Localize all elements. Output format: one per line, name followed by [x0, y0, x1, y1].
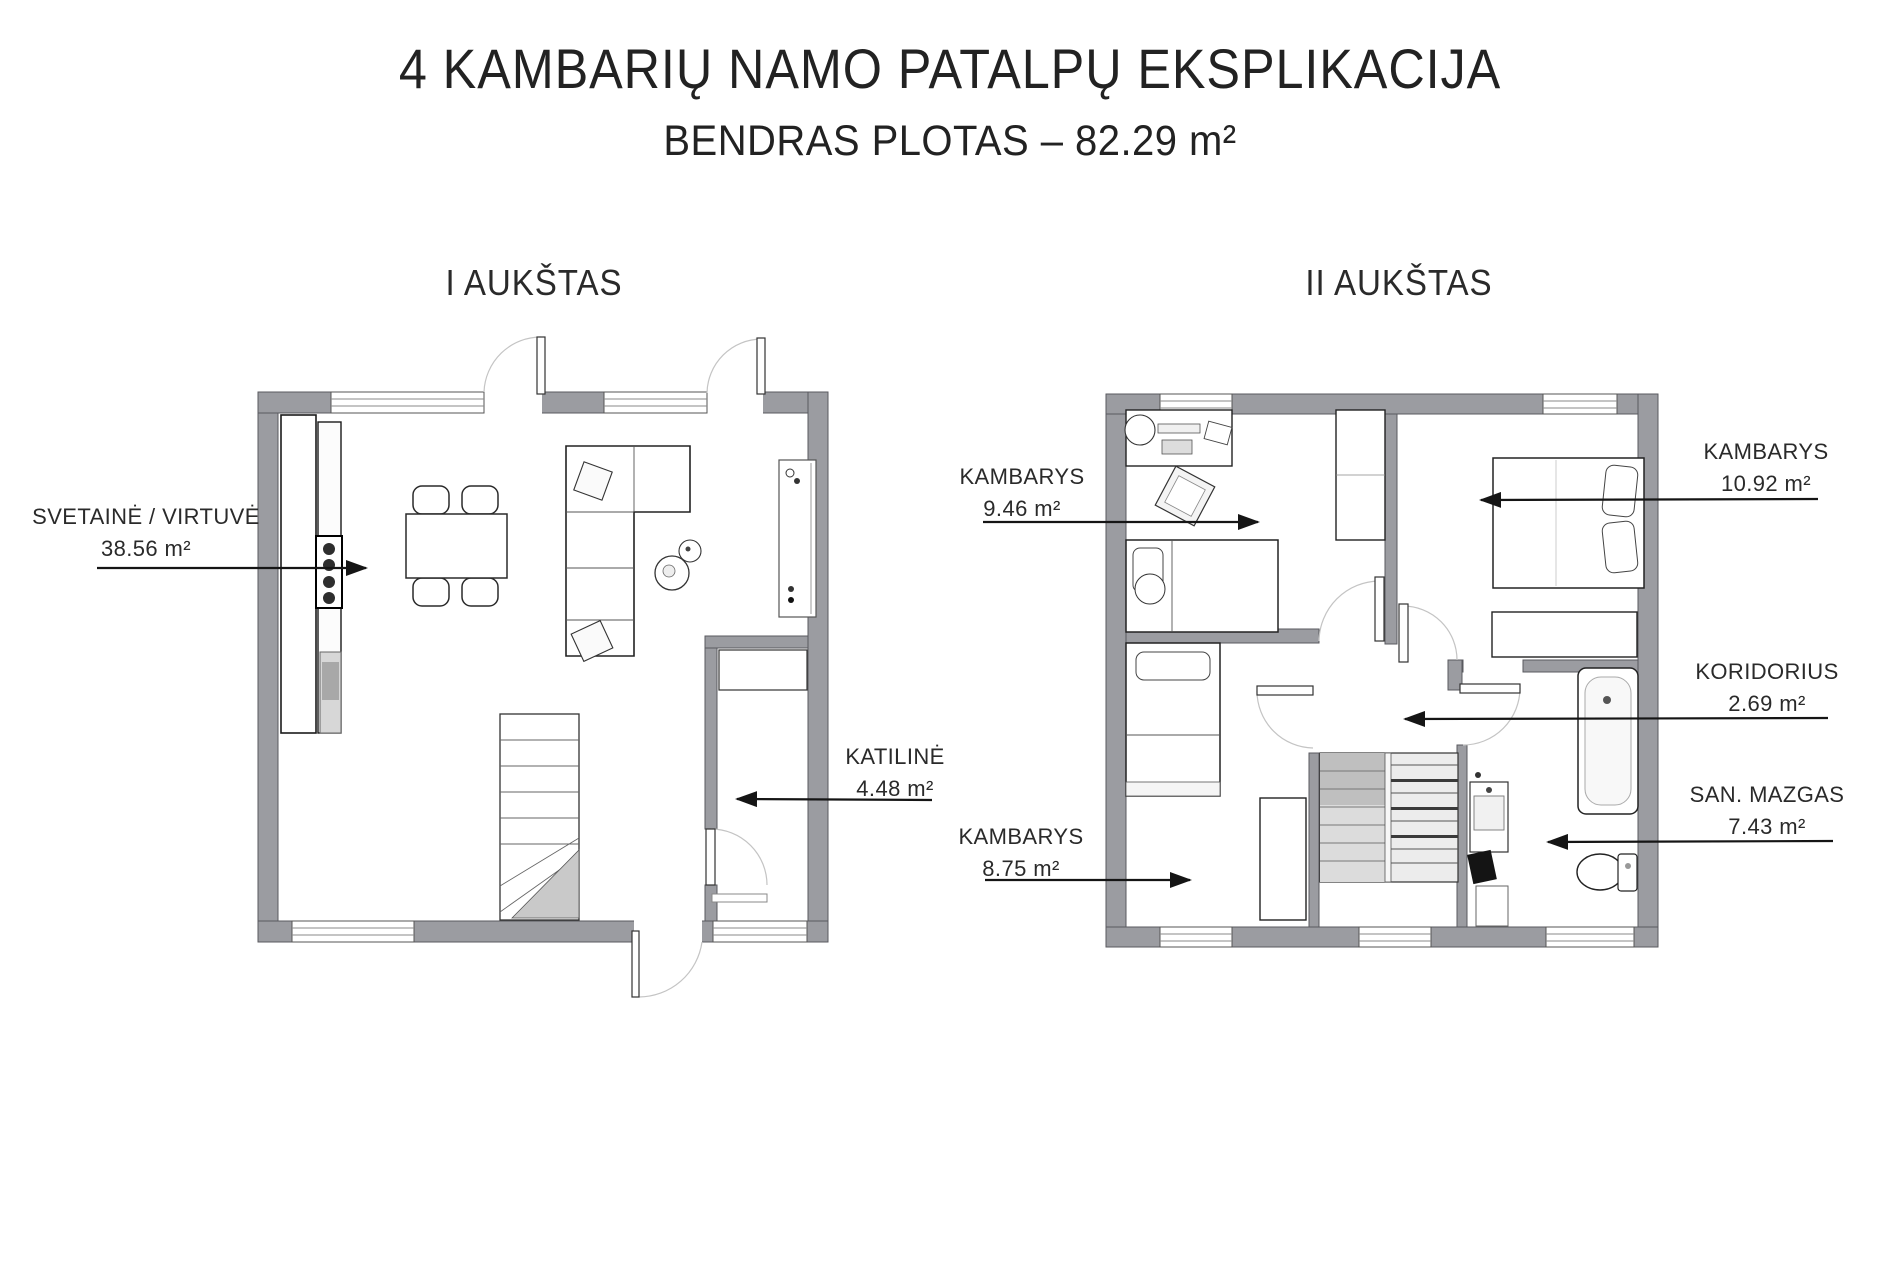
- room-name: SVETAINĖ / VIRTUVĖ: [32, 501, 260, 533]
- chair-icon: [462, 578, 498, 606]
- door-leaf: [537, 337, 545, 394]
- wall-central: [1385, 414, 1397, 644]
- room-name: SAN. MAZGAS: [1690, 779, 1845, 811]
- window: [1543, 394, 1617, 414]
- room-label-san-mazgas: SAN. MAZGAS 7.43 m²: [1690, 779, 1845, 843]
- seat-cushion: [1155, 466, 1215, 526]
- wall-boiler-vertical-low: [705, 885, 717, 921]
- bed-double: [1493, 458, 1644, 588]
- door-leaf: [1257, 686, 1313, 695]
- wardrobe-2: [1260, 798, 1306, 920]
- radiator-panel: [779, 460, 816, 617]
- room-name: KAMBARYS: [959, 461, 1084, 493]
- chair-icon: [462, 486, 498, 514]
- bathtub: [1578, 668, 1638, 814]
- room-name: KORIDORIUS: [1695, 656, 1838, 688]
- room-label-kambarys-1092: KAMBARYS 10.92 m²: [1703, 436, 1828, 500]
- office-chair-icon: [1125, 415, 1155, 445]
- room-name: KAMBARYS: [1703, 436, 1828, 468]
- pillow-icon: [1136, 652, 1210, 680]
- pillow-icon: [1601, 520, 1638, 573]
- chair-icon: [413, 486, 449, 514]
- room-area: 4.48 m²: [845, 773, 944, 805]
- door-leaf: [1375, 577, 1384, 641]
- boiler-icon: [719, 650, 807, 690]
- floorplan-svg: [0, 0, 1900, 1267]
- room-area: 38.56 m²: [32, 533, 260, 565]
- room-name: KATILINĖ: [845, 741, 944, 773]
- dresser: [1492, 612, 1637, 657]
- table-icon: [406, 514, 507, 578]
- door-leaf: [757, 338, 765, 394]
- door-leaf: [706, 829, 715, 885]
- toilet: [1577, 854, 1637, 891]
- room-area: 10.92 m²: [1703, 468, 1828, 500]
- room-area: 7.43 m²: [1690, 811, 1845, 843]
- door-leaf: [632, 931, 639, 997]
- laptop-icon: [1162, 440, 1192, 454]
- room-area: 9.46 m²: [959, 493, 1084, 525]
- washing-machine: [1476, 886, 1508, 926]
- wall-boiler-vertical: [705, 636, 717, 829]
- chair-icon: [413, 578, 449, 606]
- room-label-svetaine-virtuve: SVETAINĖ / VIRTUVĖ 38.56 m²: [32, 501, 260, 565]
- side-table: [655, 540, 701, 590]
- wall-left: [258, 392, 278, 942]
- keyboard-icon: [1158, 424, 1200, 433]
- room-area: 2.69 m²: [1695, 688, 1838, 720]
- floor2-plan: [1106, 394, 1658, 947]
- stool-icon: [1135, 574, 1165, 604]
- room-label-kambarys-946: KAMBARYS 9.46 m²: [959, 461, 1084, 525]
- room-name: KAMBARYS: [958, 821, 1083, 853]
- floorplan-page: 4 KAMBARIŲ NAMO PATALPŲ EKSPLIKACIJA BEN…: [0, 0, 1900, 1267]
- window: [292, 921, 414, 942]
- window: [1160, 927, 1232, 947]
- wardrobe: [1336, 410, 1385, 540]
- sofa: [566, 446, 690, 661]
- towel-icon: [1467, 850, 1497, 884]
- room-label-kambarys-875: KAMBARYS 8.75 m²: [958, 821, 1083, 885]
- wall-left: [1106, 394, 1126, 947]
- sink: [1470, 772, 1508, 852]
- wall-room-bottomleft: [1309, 753, 1319, 927]
- window: [604, 392, 707, 413]
- bed-single-2: [1126, 643, 1220, 796]
- room-label-koridorius: KORIDORIUS 2.69 m²: [1695, 656, 1838, 720]
- stairs: [500, 714, 579, 920]
- stairs-2: [1320, 753, 1458, 882]
- floor1-plan: [258, 337, 828, 997]
- dining-table: [406, 486, 507, 606]
- room-label-katiline: KATILINĖ 4.48 m²: [845, 741, 944, 805]
- room-area: 8.75 m²: [958, 853, 1083, 885]
- shelf-icon: [712, 894, 767, 902]
- window: [331, 392, 484, 413]
- door-leaf: [1460, 684, 1520, 693]
- window: [1359, 927, 1431, 947]
- pillow-icon: [1601, 464, 1638, 517]
- kitchen-counter: [281, 415, 342, 733]
- window: [1546, 927, 1634, 947]
- door-leaf: [1399, 604, 1408, 662]
- desk: [1125, 410, 1232, 466]
- window: [713, 921, 807, 942]
- bed-single-1: [1126, 540, 1278, 632]
- wall-boiler-horizontal: [705, 636, 808, 648]
